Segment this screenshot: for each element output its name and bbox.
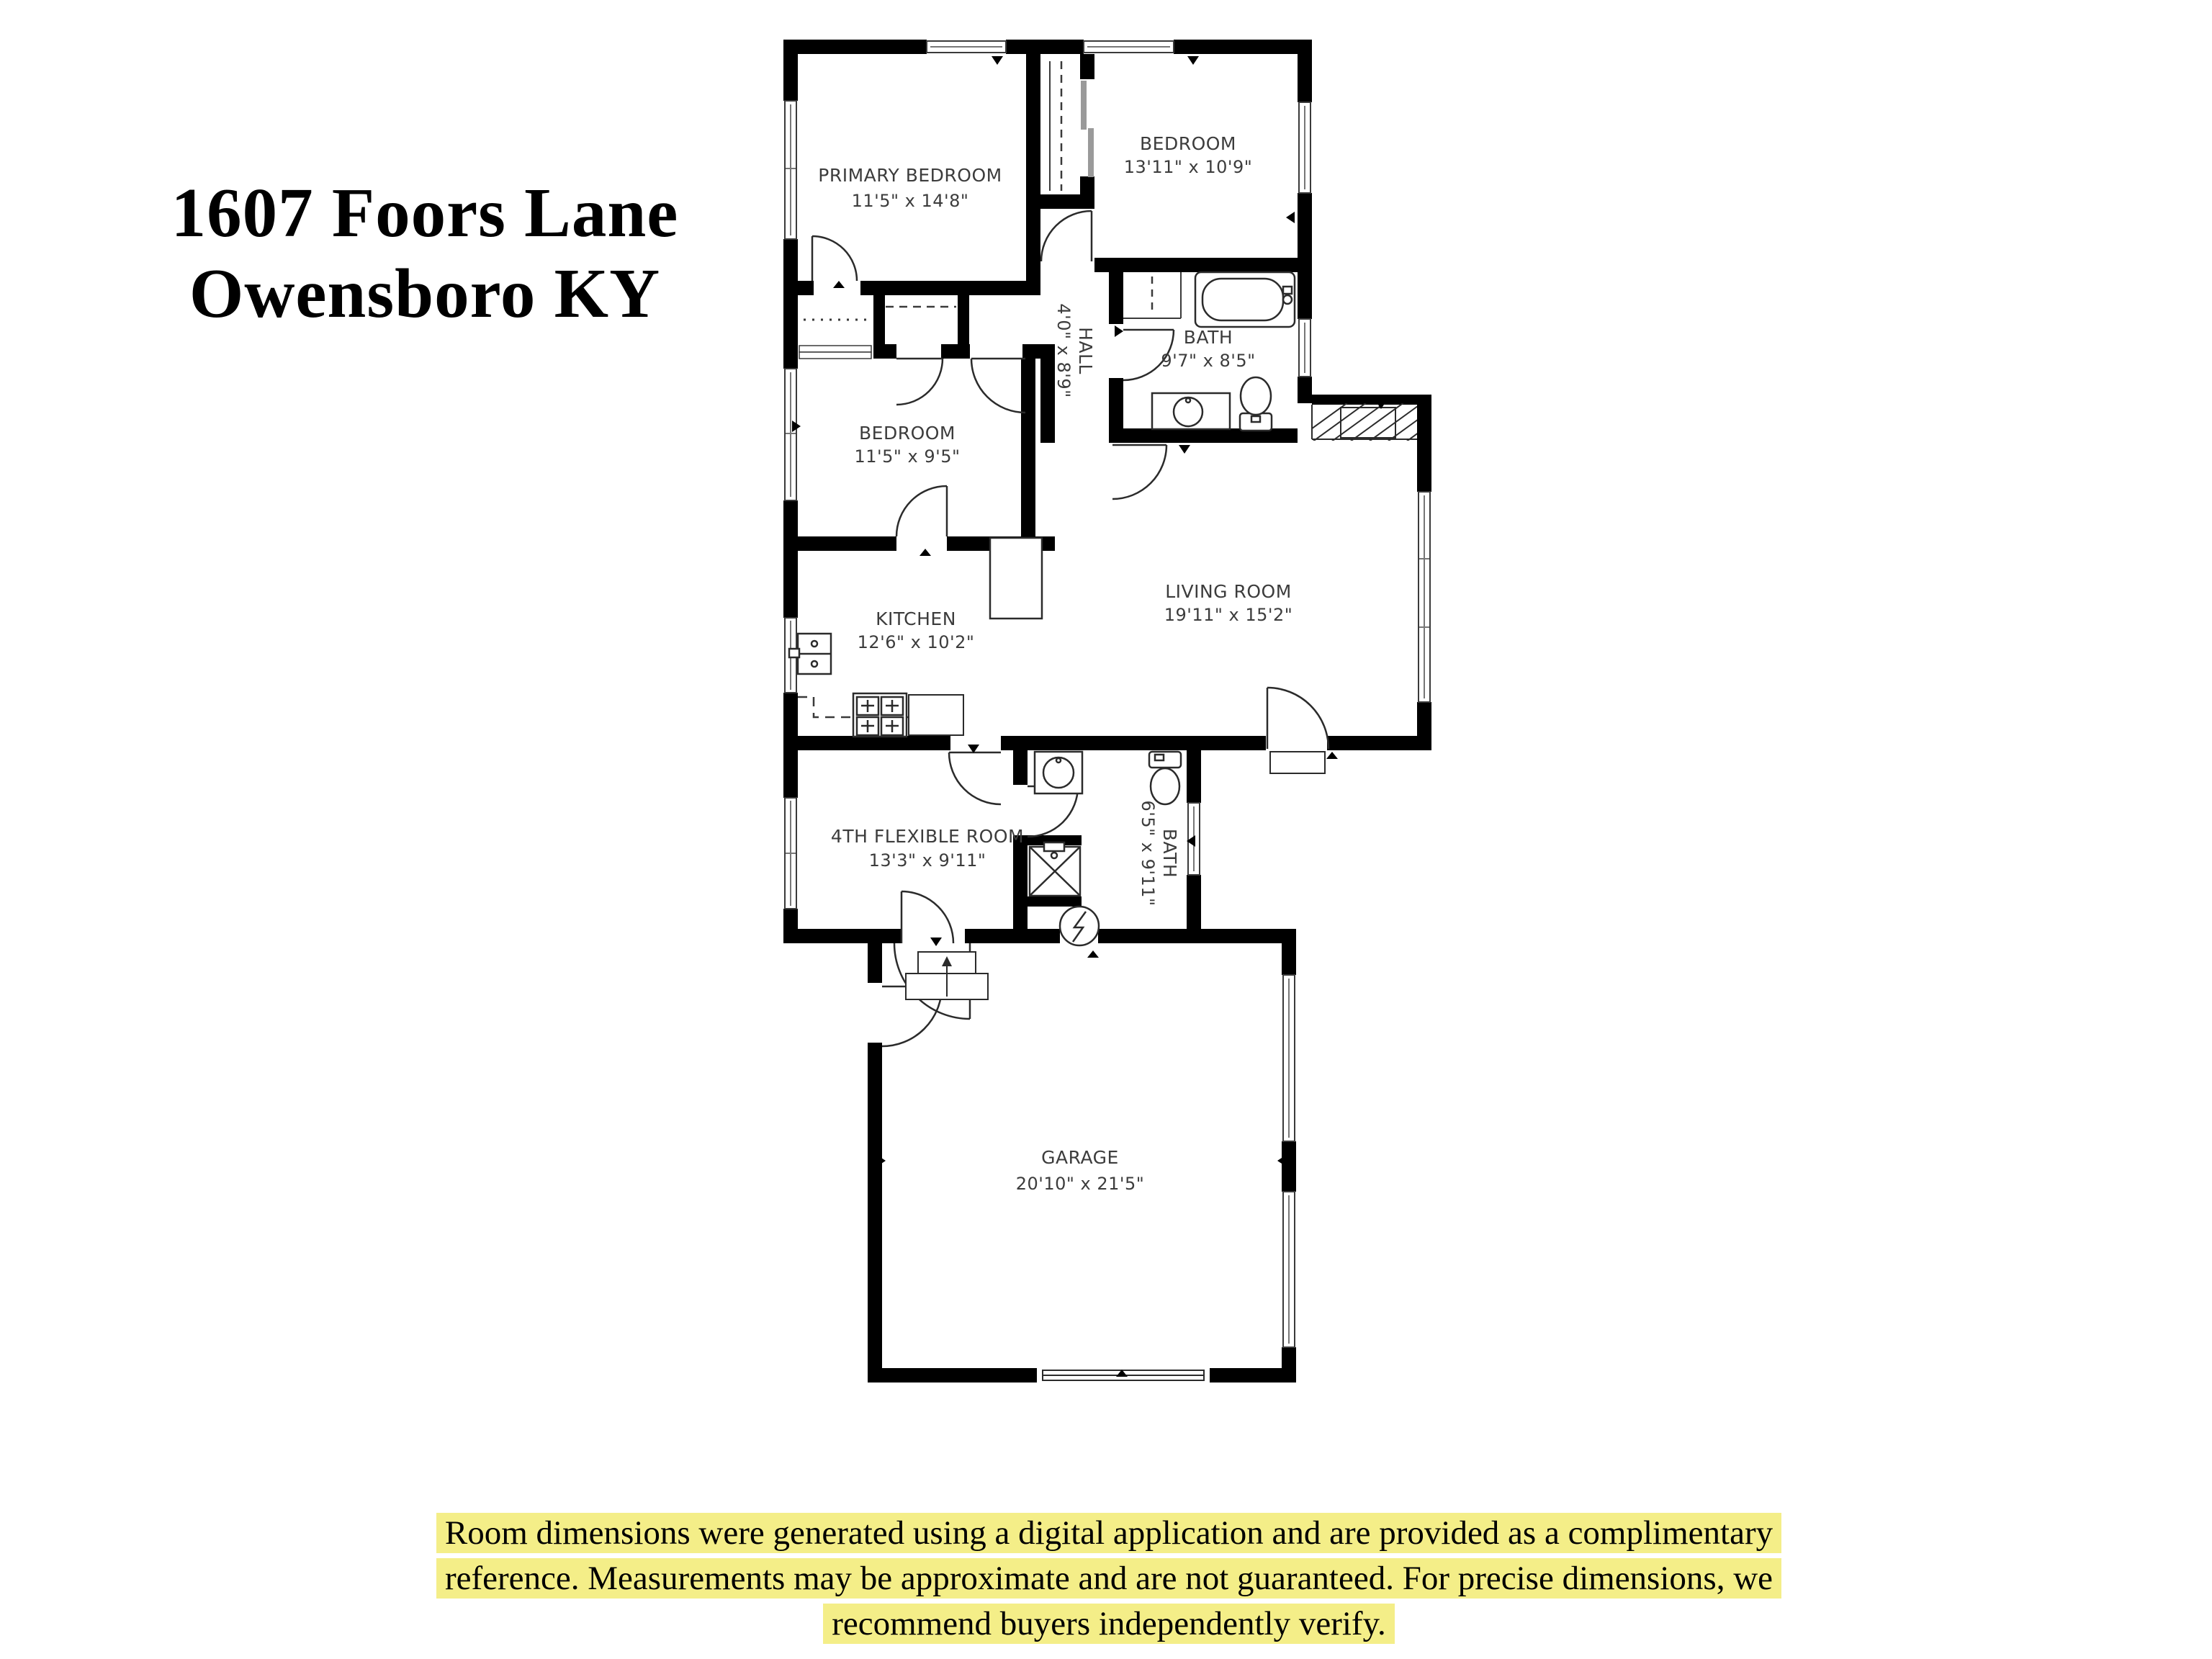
- svg-text:KITCHEN: KITCHEN: [876, 608, 956, 629]
- svg-text:PRIMARY BEDROOM: PRIMARY BEDROOM: [818, 165, 1002, 186]
- disclaimer-line3: recommend buyers independently verify.: [360, 1601, 1858, 1647]
- svg-text:11'5" x 14'8": 11'5" x 14'8": [852, 191, 969, 211]
- svg-text:13'11" x 10'9": 13'11" x 10'9": [1124, 157, 1253, 177]
- toilet: [1240, 377, 1272, 431]
- svg-text:LIVING ROOM: LIVING ROOM: [1165, 581, 1292, 602]
- bath2-toilet: [1149, 752, 1181, 804]
- svg-text:HALL: HALL: [1075, 327, 1096, 374]
- room-label-living-room: LIVING ROOM 19'11" x 15'2": [1164, 581, 1293, 625]
- svg-text:BATH: BATH: [1184, 327, 1233, 348]
- disclaimer-line1: Room dimensions were generated using a d…: [360, 1511, 1858, 1556]
- svg-text:BATH: BATH: [1159, 829, 1180, 878]
- svg-text:4TH FLEXIBLE ROOM: 4TH FLEXIBLE ROOM: [831, 826, 1024, 847]
- room-label-bath-second: BATH 6'5" x 9'11": [1138, 800, 1180, 906]
- water-heater: [1060, 907, 1099, 945]
- room-label-primary-bedroom: PRIMARY BEDROOM 11'5" x 14'8": [818, 165, 1002, 211]
- room-label-bath-main: BATH 9'7" x 8'5": [1161, 327, 1255, 371]
- front-step: [1270, 752, 1325, 773]
- svg-text:GARAGE: GARAGE: [1041, 1147, 1119, 1168]
- disclaimer: Room dimensions were generated using a d…: [360, 1511, 1858, 1647]
- bath-sink: [1152, 393, 1230, 429]
- disclaimer-line2: reference. Measurements may be approxima…: [360, 1556, 1858, 1601]
- bath2-sink: [1035, 752, 1082, 793]
- svg-text:BEDROOM: BEDROOM: [1140, 133, 1236, 154]
- room-label-bedroom-middle: BEDROOM 11'5" x 9'5": [854, 423, 960, 467]
- kitchen-counter: [909, 695, 963, 735]
- svg-text:9'7" x 8'5": 9'7" x 8'5": [1161, 351, 1255, 371]
- room-label-kitchen: KITCHEN 12'6" x 10'2": [858, 608, 975, 652]
- room-label-flex-room: 4TH FLEXIBLE ROOM 13'3" x 9'11": [831, 826, 1024, 871]
- room-label-garage: GARAGE 20'10" x 21'5": [1016, 1147, 1145, 1194]
- svg-text:20'10" x 21'5": 20'10" x 21'5": [1016, 1174, 1145, 1194]
- entry-step: [906, 952, 988, 999]
- svg-text:11'5" x 9'5": 11'5" x 9'5": [854, 446, 960, 467]
- deck-hatch: [1293, 400, 1463, 442]
- floor-plan: PRIMARY BEDROOM 11'5" x 14'8" BEDROOM 13…: [0, 0, 2212, 1659]
- bifold-door: [799, 346, 871, 359]
- svg-text:19'11" x 15'2": 19'11" x 15'2": [1164, 605, 1293, 625]
- svg-text:13'3" x 9'11": 13'3" x 9'11": [869, 850, 986, 871]
- svg-text:12'6" x 10'2": 12'6" x 10'2": [858, 632, 975, 652]
- svg-text:4'0" x 8'9": 4'0" x 8'9": [1053, 303, 1074, 397]
- bathtub: [1195, 272, 1295, 327]
- sliding-door: [1081, 81, 1094, 177]
- shower: [1030, 842, 1080, 896]
- svg-text:BEDROOM: BEDROOM: [859, 423, 956, 444]
- stove: [853, 693, 907, 737]
- refrigerator: [990, 538, 1042, 619]
- svg-text:6'5" x 9'11": 6'5" x 9'11": [1138, 800, 1158, 906]
- room-label-bedroom-top-right: BEDROOM 13'11" x 10'9": [1124, 133, 1253, 177]
- room-label-hall: HALL 4'0" x 8'9": [1053, 303, 1096, 397]
